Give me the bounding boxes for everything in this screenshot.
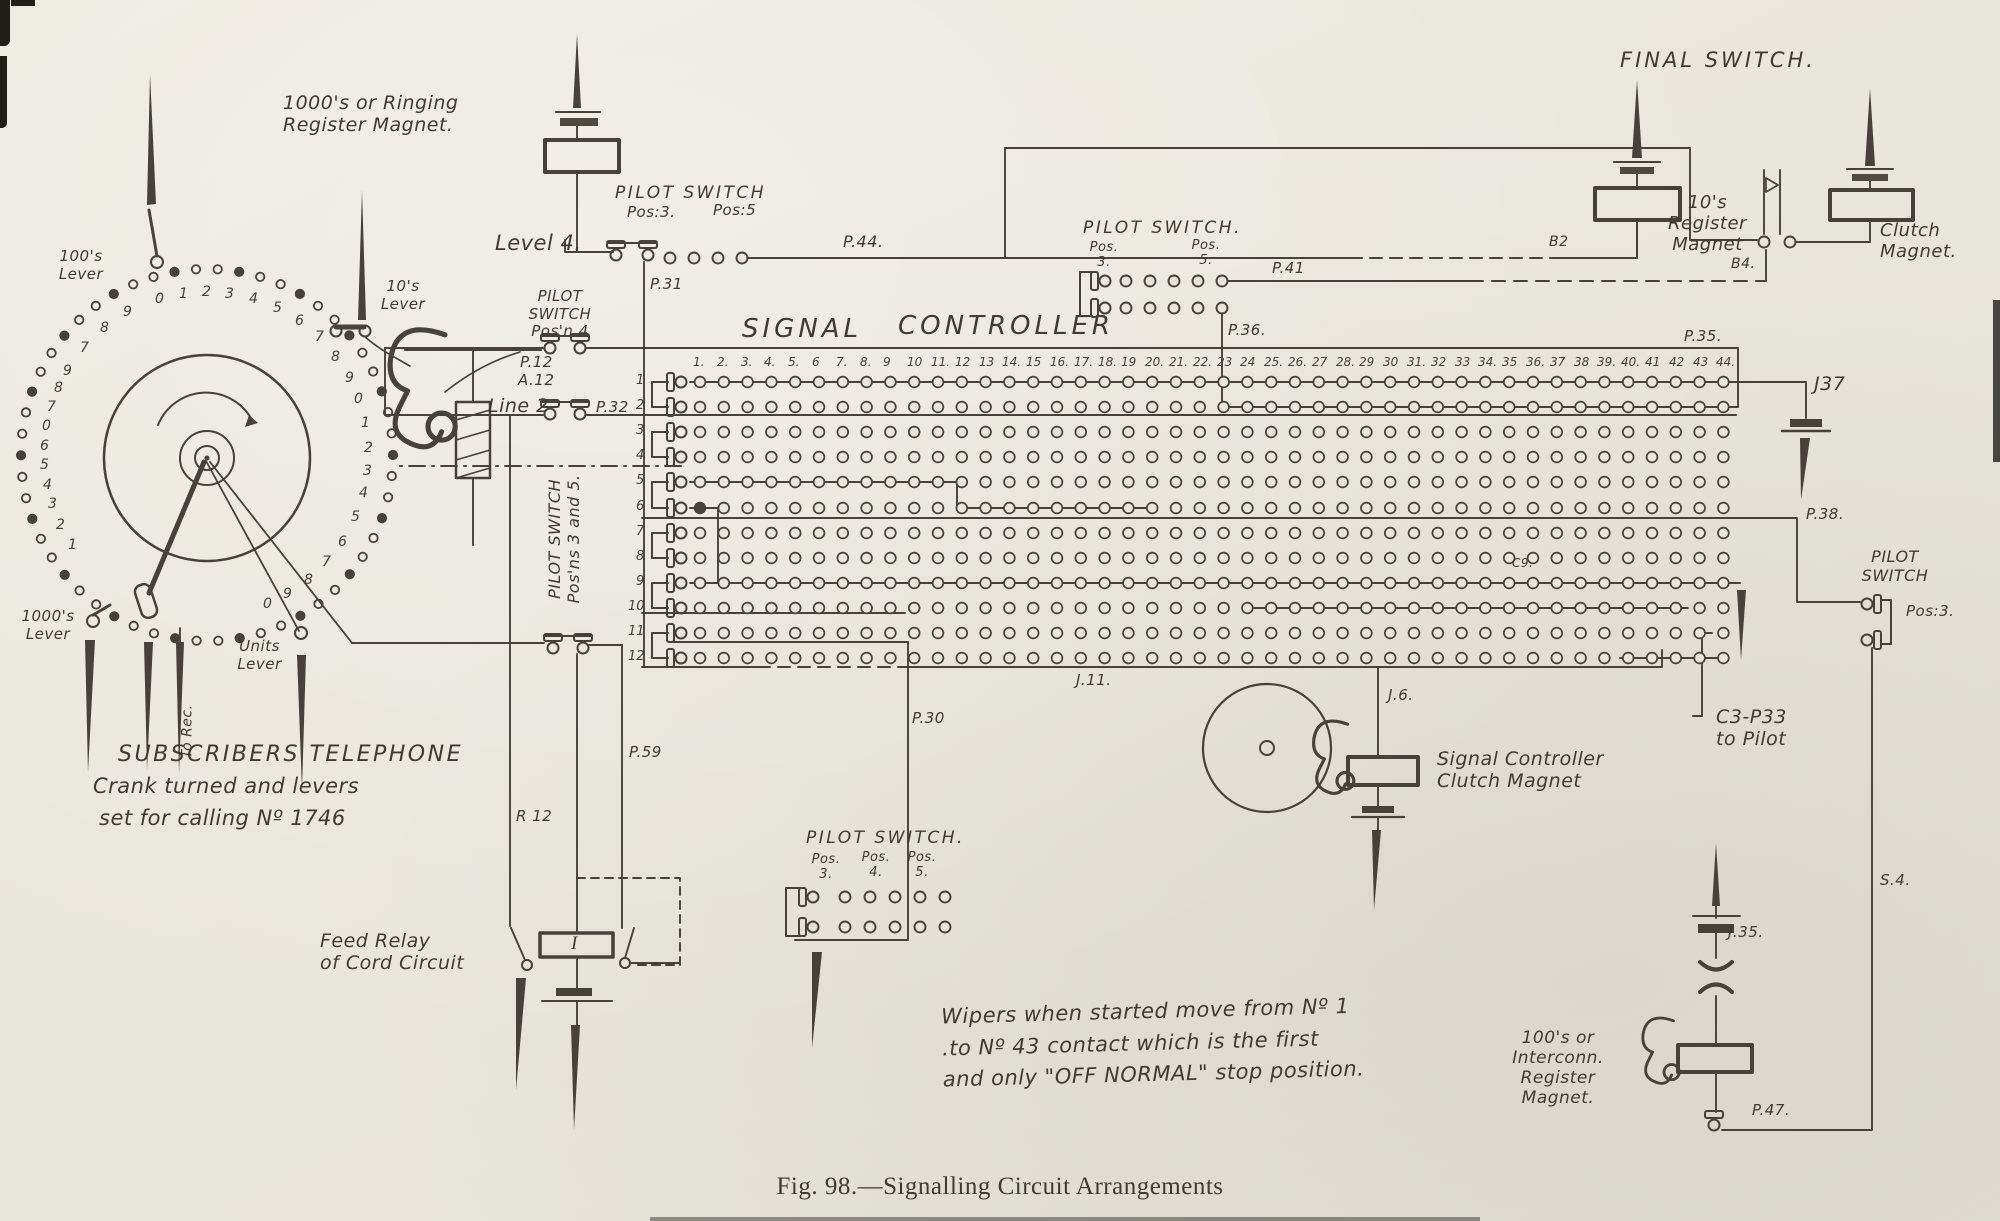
label-subscribers-2: Crank turned and levers — [93, 774, 359, 799]
grid-row-number: 9 — [636, 574, 644, 589]
grid-column-number: 13 — [979, 355, 994, 369]
title-controller: CONTROLLER — [898, 311, 1114, 342]
grid-column-number: 5. — [788, 355, 799, 369]
dial-digit: 6 — [40, 438, 49, 454]
label-level4: Level 4. — [495, 231, 582, 256]
label-p44: P.44. — [843, 233, 883, 252]
label-ps1-pos3: Pos:3. — [627, 204, 675, 222]
dial-digit: 8 — [331, 349, 340, 365]
grid-column-number: 12 — [955, 355, 970, 369]
grid-column-number: 9 — [883, 355, 891, 369]
label-p32: P.32 — [596, 399, 629, 417]
dial-digit: 1 — [361, 415, 370, 431]
label-ps1-pos5: Pos:5 — [713, 202, 756, 220]
label-to-rec: To Rec. — [180, 678, 197, 758]
grid-column-number: 26. — [1288, 355, 1307, 369]
label-line2: Line 2 — [488, 395, 549, 417]
dial-digit: 0 — [42, 418, 51, 434]
label-b4: B4. — [1731, 256, 1755, 273]
grid-column-number: 44. — [1716, 355, 1735, 369]
label-p31: P.31 — [650, 276, 683, 294]
scan-artifact — [0, 56, 7, 128]
grid-column-number: 25. — [1264, 355, 1283, 369]
grid-column-number: 22. — [1193, 355, 1212, 369]
grid-row-number: 2 — [636, 398, 644, 413]
grid-row-number: 10 — [628, 599, 645, 614]
grid-column-number: 37 — [1550, 355, 1565, 369]
grid-column-number: 18. — [1098, 355, 1117, 369]
scanned-circuit-diagram-page: 1000's or Ringing Register Magnet. PILOT… — [0, 0, 2000, 1221]
dial-digit: 6 — [338, 534, 347, 550]
lever-pivot-100s — [151, 256, 163, 268]
grid-column-number: 43 — [1693, 355, 1708, 369]
grid-row-number: 1 — [636, 373, 644, 388]
dial-digit: 1 — [68, 537, 77, 553]
grid-column-number: 33 — [1455, 355, 1470, 369]
label-lever-10s: 10's Lever — [368, 278, 438, 313]
dial-digit: 9 — [123, 304, 132, 320]
label-ringing-magnet: 1000's or Ringing Register Magnet. — [283, 92, 458, 137]
grid-row-number: 12 — [628, 649, 645, 664]
grid-column-number: 1. — [693, 355, 704, 369]
dial-digit: 8 — [304, 572, 313, 588]
grid-column-number: 31. — [1407, 355, 1426, 369]
dial-digit: 8 — [100, 320, 109, 336]
grid-row-number: 7 — [636, 524, 644, 539]
label-b2: B2 — [1549, 234, 1569, 251]
grid-column-number: 21. — [1169, 355, 1188, 369]
dial-digit: 7 — [322, 554, 331, 570]
dial-digit: 3 — [225, 286, 234, 302]
scan-artifact — [0, 0, 10, 46]
relay-designation: I — [571, 933, 578, 955]
dial-digit: 0 — [155, 291, 164, 307]
dial-digit: 2 — [56, 517, 65, 533]
grid-column-number: 2. — [717, 355, 728, 369]
grid-column-number: 17. — [1074, 355, 1093, 369]
label-a12: A.12 — [518, 372, 554, 390]
grid-column-number: 35 — [1502, 355, 1517, 369]
label-p38: P.38. — [1806, 506, 1844, 524]
dial-digit: 4 — [249, 291, 258, 307]
label-p30: P.30 — [912, 710, 945, 728]
grid-column-number: 41 — [1645, 355, 1660, 369]
grid-row-number: 4 — [636, 448, 644, 463]
label-p59: P.59 — [629, 744, 662, 762]
grid-column-number: 20. — [1145, 355, 1164, 369]
grid-column-number: 42 — [1669, 355, 1684, 369]
dial-digit: 3 — [363, 463, 372, 479]
label-p36: P.36. — [1228, 322, 1266, 340]
label-ps5-pos5: Pos. 5. — [902, 850, 942, 881]
grid-column-number: 34. — [1478, 355, 1497, 369]
dial-digit: 4 — [359, 485, 368, 501]
dial-contact-ring — [17, 265, 397, 645]
grid-row-number: 6 — [636, 499, 644, 514]
dial-digit: 2 — [364, 440, 373, 456]
grid-column-number: 29 — [1359, 355, 1374, 369]
label-tens-magnet: 10's Register Magnet — [1655, 192, 1760, 256]
signal-controller-clutch-symbol — [1203, 684, 1418, 813]
label-ps5-pos3: Pos. 3. — [806, 852, 846, 883]
hundreds-register-magnet-symbol — [1643, 924, 1752, 1083]
grid-column-number: 39. — [1597, 355, 1616, 369]
dial-digit: 7 — [47, 399, 56, 415]
grid-column-number: 32 — [1431, 355, 1446, 369]
clutch-magnet-symbol — [1830, 169, 1913, 220]
label-p47: P.47. — [1752, 1102, 1790, 1120]
j37-battery-symbol — [1790, 419, 1822, 427]
grid-column-number: 28. — [1336, 355, 1355, 369]
label-ps3-pos5: Pos. 5. — [1186, 238, 1226, 269]
grid-column-number: 23 — [1217, 355, 1232, 369]
label-subscribers-3: set for calling Nº 1746 — [99, 806, 346, 831]
dial-digit: 7 — [315, 329, 324, 345]
label-j37: J37 — [1814, 373, 1845, 395]
dial-digit: 8 — [54, 380, 63, 396]
dial-digit: 7 — [80, 340, 89, 356]
grid-column-number: 14. — [1002, 355, 1021, 369]
grid-column-number: 38 — [1574, 355, 1589, 369]
grid-column-number: 36. — [1526, 355, 1545, 369]
grid-column-number: 11. — [931, 355, 950, 369]
grid-column-number: 7. — [836, 355, 847, 369]
scan-artifact — [1993, 300, 2000, 462]
grid-column-number: 15 — [1026, 355, 1041, 369]
grid-column-number: 4. — [764, 355, 775, 369]
figure-caption: Fig. 98.—Signalling Circuit Arrangements — [700, 1172, 1300, 1202]
label-j11: J.11. — [1076, 672, 1112, 690]
label-lever-100s: 100's Lever — [46, 248, 116, 283]
label-s4: S.4. — [1880, 872, 1911, 890]
grid-column-number: 16. — [1050, 355, 1069, 369]
row-wiper-brackets — [652, 373, 687, 667]
title-signal: SIGNAL — [742, 314, 862, 345]
label-final-switch: FINAL SWITCH. — [1620, 48, 1816, 73]
label-ps3-pos3: Pos. 3. — [1084, 240, 1124, 271]
label-lever-units: Units Lever — [222, 638, 297, 673]
grid-row-number: 3 — [636, 423, 644, 438]
grid-column-number: 19 — [1121, 355, 1136, 369]
label-pilot-switch-5: PILOT SWITCH. — [806, 828, 965, 848]
label-p41: P.41 — [1272, 260, 1305, 278]
label-feed-relay: Feed Relay of Cord Circuit — [320, 930, 464, 975]
scan-artifact — [11, 0, 35, 6]
dial-digit: 5 — [273, 300, 282, 316]
grid-column-number: 6 — [812, 355, 820, 369]
label-j6: J.6. — [1388, 687, 1414, 705]
dial-digit: 2 — [202, 284, 211, 300]
label-hundreds-magnet: 100's or Interconn. Register Magnet. — [1488, 1028, 1628, 1108]
dial-digit: 1 — [179, 286, 188, 302]
label-subscribers-1: SUBSCRIBERS TELEPHONE — [118, 742, 463, 768]
label-ps4-pos3: Pos:3. — [1906, 603, 1954, 621]
label-sc-clutch-magnet: Signal Controller Clutch Magnet — [1437, 748, 1604, 793]
dial-digit: 9 — [283, 586, 292, 602]
label-pilot-switch-3-5-vertical: PILOT SWITCH Pos'ns 3 and 5. — [546, 414, 584, 664]
dial-digit: 9 — [63, 363, 72, 379]
grid-row-number: 11 — [628, 624, 645, 639]
dial-digit: 4 — [43, 477, 52, 493]
dial-digit: 5 — [40, 457, 49, 473]
grid-column-number: 24 — [1240, 355, 1255, 369]
grid-column-number: 8. — [860, 355, 871, 369]
label-c9: C9. — [1512, 556, 1533, 570]
label-p35: P.35. — [1684, 328, 1722, 346]
dial-digit: 0 — [354, 391, 363, 407]
label-ps5-pos4: Pos. 4. — [856, 850, 896, 881]
signal-controller-contact-grid — [695, 377, 1729, 664]
grid-row-number: 8 — [636, 549, 644, 564]
dial-digit: 9 — [345, 370, 354, 386]
label-p12: P.12 — [520, 354, 553, 372]
ringing-register-magnet-symbol — [545, 112, 619, 172]
label-clutch-magnet: Clutch Magnet. — [1880, 220, 1957, 262]
label-pilot-switch-3: PILOT SWITCH. — [1083, 218, 1242, 238]
note-wipers: Wipers when started move from Nº 1 .to N… — [941, 990, 1365, 1096]
grid-column-number: 3. — [741, 355, 752, 369]
dial-digit: 5 — [351, 509, 360, 525]
lever-pivot-1000s — [87, 615, 99, 627]
label-j35: J.35. — [1728, 924, 1764, 942]
grid-column-number: 30 — [1383, 355, 1398, 369]
label-r12: R 12 — [516, 808, 552, 826]
dial-digit: 6 — [295, 313, 304, 329]
label-c3p33: C3-P33 to Pilot — [1716, 706, 1787, 751]
label-pilot-switch-2: PILOT SWITCH Pos'n 4 — [505, 288, 615, 341]
grid-row-number: 5 — [636, 473, 644, 488]
grid-column-number: 40. — [1621, 355, 1640, 369]
label-lever-1000s: 1000's Lever — [8, 608, 88, 643]
scan-artifact — [650, 1217, 1480, 1221]
grid-column-number: 10 — [907, 355, 922, 369]
dial-crank — [149, 462, 204, 593]
dial-digit: 0 — [263, 596, 272, 612]
label-pilot-switch-4: PILOT SWITCH — [1835, 548, 1955, 586]
grid-column-number: 27 — [1312, 355, 1327, 369]
dial-digit: 3 — [48, 496, 57, 512]
